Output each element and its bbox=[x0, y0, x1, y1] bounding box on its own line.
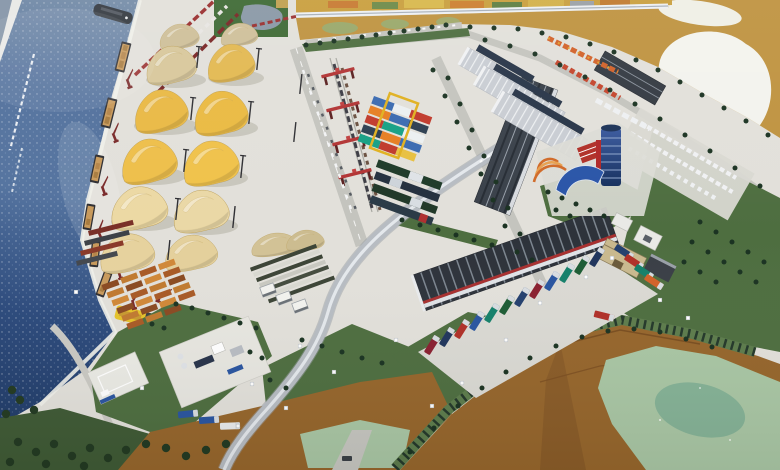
port-model-photo bbox=[0, 0, 780, 470]
photo-vignette bbox=[0, 0, 780, 470]
